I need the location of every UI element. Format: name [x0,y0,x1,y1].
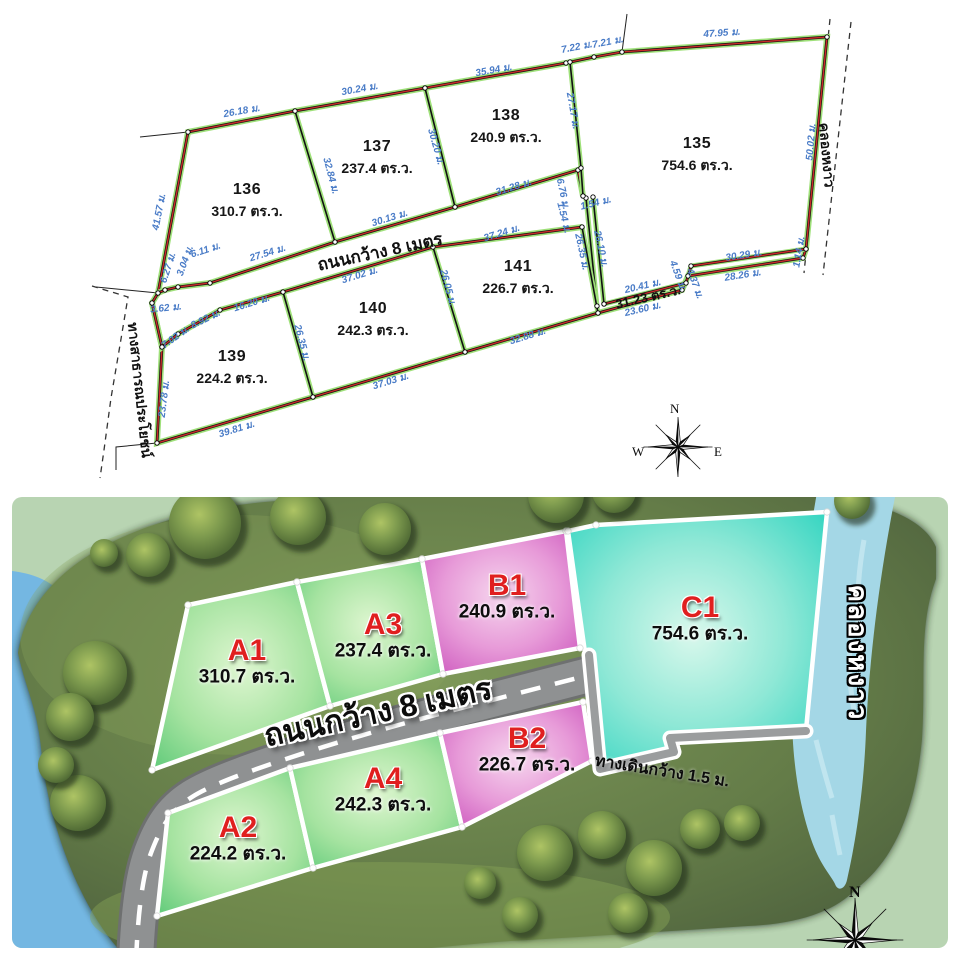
site-map-illustration [0,485,960,960]
road-edges [152,170,583,347]
public-road-dashed-line [92,286,128,478]
walkway-strip-lines [586,197,806,306]
survey-plan-drawing [0,0,960,485]
land-subdivision-sheet: N W E 26.18 ม.30.24 ม.35.94 ม.7.22 ม.7.2… [0,0,960,960]
compass-rose-top [644,417,713,477]
plot-B1 [422,531,580,674]
